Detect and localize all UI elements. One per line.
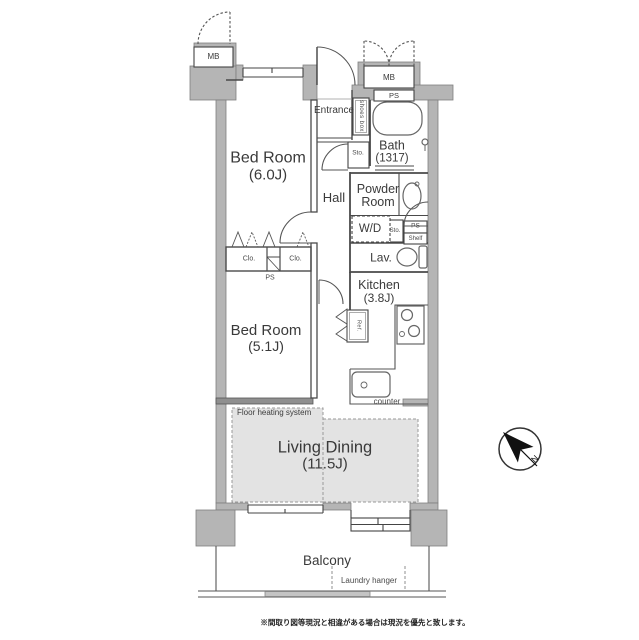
lavatory-label: Lav. [370,252,392,265]
shoes-box-label: shoes box [358,100,364,132]
sto-hall-label: Sto. [352,151,364,158]
hall-label: Hall [323,191,345,205]
living-dining-label: Living Dining(11.5J) [278,439,372,472]
bedroom2-label: Bed Room(5.1J) [231,323,302,353]
ps-closet-label: PS [265,274,274,281]
ps-top-label: PS [389,92,399,100]
closet-left-label: Clo. [243,255,255,262]
mb-left-label: MB [208,53,220,61]
shelf-label: Shelf [409,235,423,241]
sto-utility-label: Sto. [390,228,401,234]
wd-label: W/D [359,223,381,235]
refrigerator-label: Ref. [355,320,361,332]
laundry-hanger-label: Laundry hanger [341,577,397,585]
floorplan: MB MB PS Entrance shoes box Bath(1317) S… [0,0,639,640]
bedroom1-label: Bed Room(6.0J) [230,151,306,184]
floorplan-drawing [0,0,639,640]
counter-label: counter [374,397,401,405]
closet-right-label: Clo. [289,255,301,262]
ps-utility-label: PS [411,224,420,231]
entrance-label: Entrance [314,106,354,117]
bedroom2-living-wall [216,398,313,404]
bath-label: Bath(1317) [375,139,408,164]
balcony-label: Balcony [303,554,351,568]
kitchen-label: Kitchen(3.8J) [358,279,400,305]
disclaimer-text: ※間取り図等現況と相違がある場合は現況を優先と致します。 [260,619,469,627]
floor-heating-label: Floor heating system [237,409,311,417]
mb-right-label: MB [383,73,395,81]
powder-room-label: Powder Room [350,183,406,209]
